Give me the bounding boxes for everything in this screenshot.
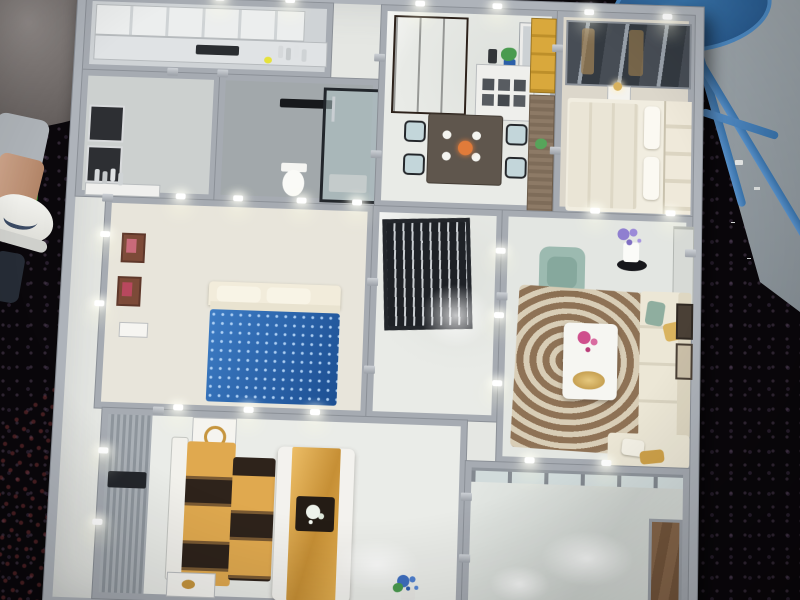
wall-frame bbox=[121, 233, 146, 263]
flower-centerpiece bbox=[458, 141, 473, 156]
pillow bbox=[643, 157, 660, 200]
dining-chair bbox=[505, 124, 527, 146]
coffee-table bbox=[562, 322, 618, 400]
wall-art bbox=[676, 303, 693, 339]
blue-bed bbox=[206, 309, 340, 406]
dining-chair bbox=[505, 157, 527, 179]
hanging-clothes bbox=[581, 28, 595, 74]
bedroom-wardrobe bbox=[553, 11, 694, 217]
display-niche bbox=[88, 105, 126, 143]
led-light bbox=[173, 404, 183, 410]
wall-cap bbox=[367, 278, 378, 286]
teal-pillow bbox=[644, 300, 665, 327]
entry-door bbox=[391, 15, 469, 115]
led-light bbox=[584, 9, 594, 15]
duvet bbox=[567, 102, 638, 209]
cooktop bbox=[196, 45, 240, 56]
hanging-clothes bbox=[628, 30, 643, 76]
wall-cap bbox=[102, 194, 113, 202]
counter-bottles bbox=[278, 46, 283, 59]
led-light bbox=[352, 199, 362, 205]
sofa-gold-cushions bbox=[228, 457, 276, 582]
led-light bbox=[492, 3, 502, 9]
led-light bbox=[98, 447, 108, 453]
pillow bbox=[266, 287, 311, 304]
balcony bbox=[462, 461, 690, 600]
sideboard bbox=[475, 64, 535, 122]
led-light bbox=[296, 197, 306, 203]
led-light bbox=[415, 1, 425, 7]
white-bench bbox=[119, 322, 149, 338]
led-light bbox=[662, 14, 672, 20]
sideboard-cubbies bbox=[482, 78, 494, 90]
purple-flowers bbox=[617, 228, 629, 240]
frame-art bbox=[126, 239, 137, 253]
photo-scene bbox=[0, 0, 800, 600]
display-niche bbox=[85, 145, 123, 183]
wall-cap bbox=[371, 150, 382, 158]
entry-dining-room bbox=[375, 5, 558, 212]
bathroom bbox=[214, 74, 379, 206]
wall-frame bbox=[116, 276, 142, 307]
dark-tray bbox=[295, 496, 335, 532]
led-light bbox=[590, 208, 600, 214]
pillow bbox=[644, 106, 660, 149]
white-bouquet bbox=[306, 505, 321, 520]
toilet-bowl bbox=[282, 170, 305, 197]
media-wall bbox=[99, 414, 153, 594]
wall-cap bbox=[167, 68, 178, 76]
floor-debris bbox=[735, 160, 743, 165]
mirrored-wardrobe bbox=[565, 20, 692, 89]
wall-cap bbox=[550, 147, 561, 155]
wall-cap bbox=[459, 554, 470, 563]
wall-cap bbox=[685, 249, 696, 257]
sneaker-swoosh bbox=[2, 205, 40, 234]
shower-enclosure bbox=[319, 87, 383, 204]
led-light bbox=[666, 210, 676, 216]
floor-sheen bbox=[540, 529, 635, 588]
wall-cap bbox=[374, 54, 385, 62]
headboard bbox=[663, 101, 692, 215]
wall-cap bbox=[153, 406, 164, 414]
shower-column bbox=[331, 96, 335, 121]
led-light bbox=[243, 407, 253, 413]
led-light bbox=[233, 195, 243, 201]
led-light bbox=[494, 312, 504, 318]
wood-nook bbox=[648, 519, 683, 600]
flower-pot bbox=[401, 587, 416, 600]
dining-chair bbox=[403, 153, 425, 175]
led-light bbox=[496, 248, 506, 254]
bar-bottles bbox=[94, 169, 100, 182]
living-room bbox=[496, 210, 692, 469]
wall-art bbox=[675, 343, 693, 380]
shower-tray bbox=[329, 174, 367, 193]
frame-art bbox=[122, 282, 133, 296]
led-light bbox=[310, 409, 320, 415]
pillow bbox=[216, 285, 261, 302]
wall-cap bbox=[552, 44, 563, 52]
family-room bbox=[92, 408, 467, 600]
bar-ledge bbox=[85, 182, 161, 197]
wall-cap bbox=[461, 493, 472, 502]
pink-flowers bbox=[577, 331, 590, 344]
led-light bbox=[94, 300, 104, 306]
hallway bbox=[366, 206, 503, 422]
dining-table bbox=[426, 113, 503, 186]
dining-chair bbox=[404, 120, 426, 142]
bedroom-blue bbox=[95, 197, 374, 417]
led-light bbox=[176, 193, 186, 199]
gold-pillow bbox=[639, 449, 665, 465]
pantry-bar bbox=[76, 70, 221, 201]
place-settings bbox=[442, 130, 451, 139]
floor-sheen bbox=[488, 565, 550, 600]
led-light bbox=[492, 380, 502, 386]
media-slot bbox=[107, 471, 146, 489]
kitchen bbox=[83, 0, 333, 78]
partition-plant bbox=[535, 138, 547, 149]
apartment-scale-model bbox=[43, 0, 704, 600]
led-light bbox=[524, 457, 534, 463]
led-light bbox=[92, 519, 102, 526]
led-light bbox=[100, 231, 110, 237]
wall-cap bbox=[496, 292, 507, 300]
gold-cabinet bbox=[529, 18, 556, 94]
armchair-seat bbox=[547, 256, 578, 289]
led-light bbox=[601, 460, 611, 466]
dark-ornament bbox=[488, 49, 497, 64]
wall-cap bbox=[217, 69, 228, 77]
floor-sheen bbox=[419, 283, 493, 349]
white-vase bbox=[623, 242, 639, 262]
gold-plate bbox=[181, 579, 195, 589]
gold-lamp bbox=[613, 82, 622, 91]
wall-cap bbox=[364, 365, 375, 373]
led-light bbox=[285, 0, 295, 3]
side-table bbox=[166, 572, 216, 599]
gold-tray bbox=[573, 371, 606, 390]
